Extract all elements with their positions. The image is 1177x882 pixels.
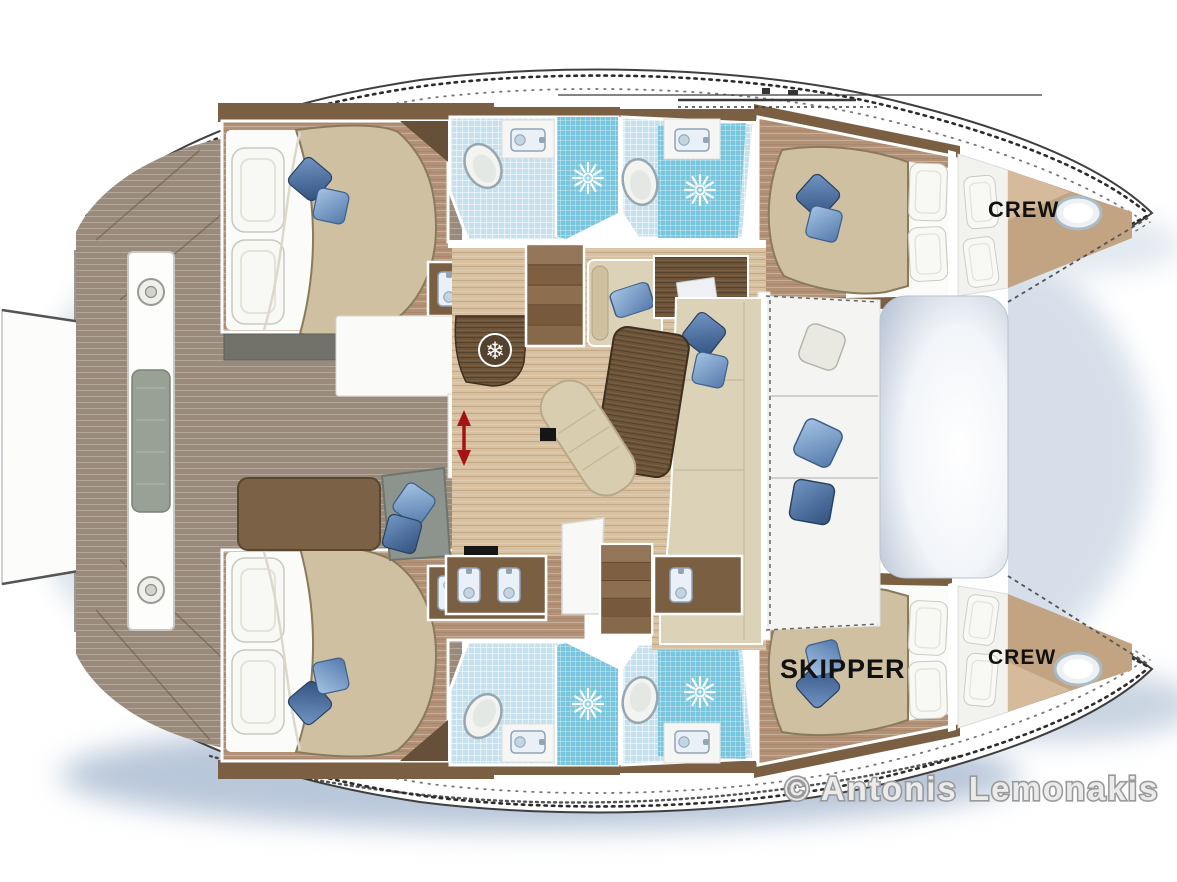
crew-label-starboard: CREW	[988, 646, 1056, 669]
sink-icon	[675, 129, 709, 151]
toilet-icon	[1055, 197, 1101, 229]
cockpit-bench	[128, 252, 174, 630]
snowflake-icon: ❄	[485, 338, 505, 365]
step-box	[224, 334, 338, 360]
copyright-watermark: © Antonis Lemonakis	[785, 770, 1160, 807]
bow-trampoline	[880, 296, 1008, 578]
bed-pillow	[908, 163, 947, 221]
floor-hatch	[540, 428, 556, 441]
sink-icon	[458, 568, 480, 602]
companionway-stairs-starboard	[600, 544, 652, 635]
sunpad	[238, 478, 380, 550]
hatch-icon	[138, 279, 164, 305]
blue-pillow	[805, 205, 844, 244]
hatch-icon	[138, 577, 164, 603]
salon-front-wall	[336, 316, 464, 396]
salon: ❄	[446, 240, 770, 650]
bench-cushion	[132, 370, 170, 512]
bed-pillow	[908, 226, 948, 282]
crew-cushion	[962, 236, 1000, 289]
catamaran-floor-plan: ❄	[0, 0, 1177, 882]
skipper-label: SKIPPER	[780, 654, 906, 684]
galley-aft-counter	[446, 546, 546, 614]
bathroom-forward	[619, 109, 756, 238]
crew-label-port: CREW	[988, 197, 1059, 222]
aft-counter-starboard	[654, 556, 742, 614]
bathroom-aft	[448, 107, 620, 240]
fridge-cabinet: ❄	[455, 316, 528, 386]
blue-pillow	[312, 187, 350, 225]
sink-icon	[498, 568, 520, 602]
bed-pillow	[232, 148, 284, 232]
seat-module	[562, 518, 604, 614]
cooktop	[464, 546, 498, 555]
blue-pillow	[691, 351, 729, 389]
dark-blue-cushion	[788, 478, 835, 525]
sink-icon	[511, 129, 545, 151]
sink-icon	[670, 568, 692, 602]
companionway-stairs-port	[526, 244, 584, 346]
bolster-cushion	[592, 266, 608, 340]
